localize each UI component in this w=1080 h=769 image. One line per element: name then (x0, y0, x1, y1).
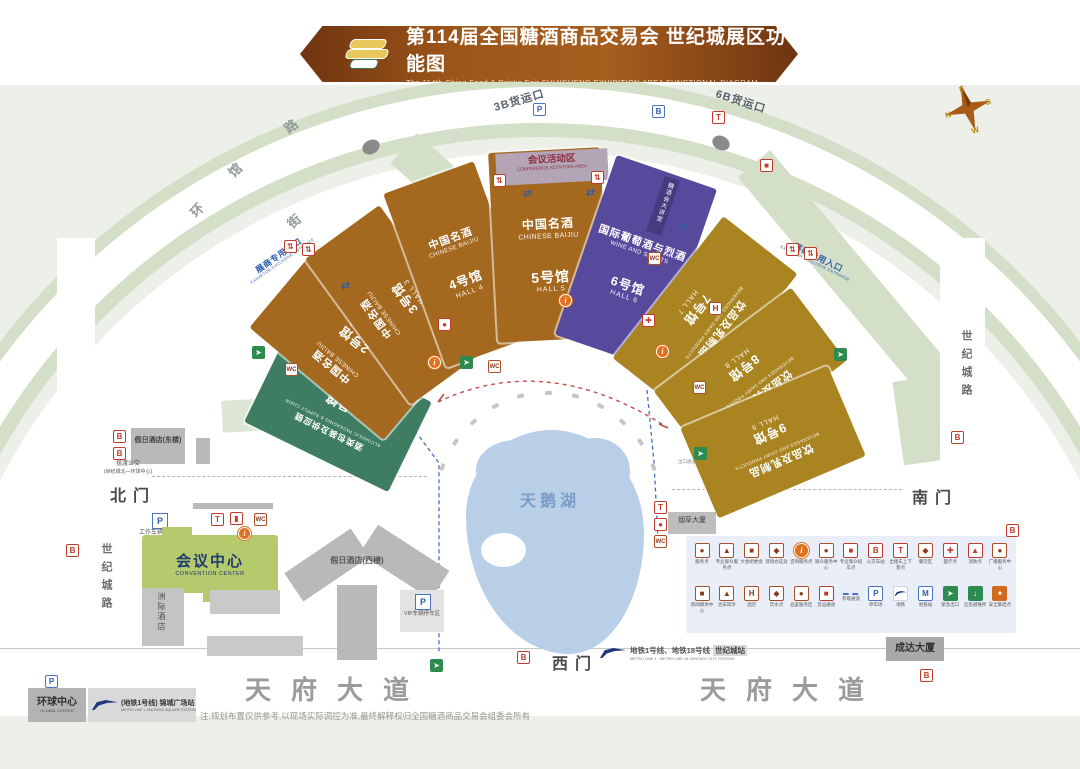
title-banner: 第114届全国糖酒商品交易会 世纪城展区功能图 The 114th China … (300, 26, 798, 82)
legend-item: T出租车上下客点 (889, 543, 913, 571)
legend-item: ✚医疗点 (938, 543, 962, 571)
parking-icon: P (45, 675, 58, 688)
legend-icon: T (893, 543, 908, 558)
century-road-right: 世纪城路 (958, 330, 974, 402)
tianfu-avenue-left: 天府大道 (245, 670, 429, 707)
exit-icon: ➤ (694, 447, 707, 460)
legend-icon: ▲ (968, 543, 983, 558)
bus-station-icon: B (652, 105, 665, 118)
restroom-icon: WC (654, 535, 667, 548)
century-station-en: METRO LINE 1 · METRO LINE 18 CENTURY CIT… (630, 657, 747, 661)
holiday-inn-east-wing (196, 438, 210, 464)
legend-item: ➤紧急出口 (938, 586, 962, 614)
compass-n: N (944, 110, 952, 120)
legend-row-2: ■新闻媒体中心▲治安岗亭H酒店◆饮水点●品鉴服务区■货运通道参观通道P停车场地铁… (690, 586, 1012, 614)
bottle-icon: ▮ (230, 512, 243, 525)
bus-icon: B (951, 431, 964, 444)
legend-icon: ◆ (769, 543, 784, 558)
legend-label: 新闻媒体中心 (690, 602, 714, 614)
exit-icon: ➤ (460, 356, 473, 369)
exhibition-map: 天鹅湖 酒类包装及供应链 ALCOHOLIC PACKAGING & SUPPL… (0, 0, 1080, 769)
legend-icon: ■ (695, 586, 710, 601)
truck-icon: ■ (760, 159, 773, 172)
vip-parking-icon: P (415, 594, 431, 610)
legend-item: ●观众服务中心 (814, 543, 838, 571)
arrow-icon: ⇄ (584, 187, 597, 200)
info-icon: i (238, 527, 251, 540)
legend-icon: ▲ (719, 586, 734, 601)
legend-label: 医疗点 (938, 559, 962, 565)
holiday-inn-east (131, 428, 185, 464)
exit-icon: ➤ (430, 659, 443, 672)
bus-icon: B (920, 669, 933, 682)
hotel-annex (207, 636, 303, 656)
convention-wall (193, 503, 273, 509)
legend-item: ✦安全集结点 (988, 586, 1012, 614)
legend-row-1: ●服务点▲专业观众服务点■大会组委会◆现场办证处i咨询服务点●观众服务中心■专业… (690, 543, 1012, 571)
legend-icon: P (868, 586, 883, 601)
bus-icon: B (1006, 524, 1019, 537)
legend-label: 饮水点 (764, 602, 788, 608)
legend-panel: ●服务点▲专业观众服务点■大会组委会◆现场办证处i咨询服务点●观众服务中心■专业… (686, 536, 1016, 633)
legend-label: 观众服务中心 (814, 559, 838, 571)
escalator-icon: ⇅ (804, 247, 817, 260)
legend-icon: H (744, 586, 759, 601)
south-gate: 南门 (912, 484, 958, 508)
legend-item: ↓应急避难所 (963, 586, 987, 614)
legend-item: ▲消防点 (963, 543, 987, 571)
info-icon: i (428, 356, 441, 369)
legend-label: 消防点 (963, 559, 987, 565)
global-center-label: 环球中心 GLOBAL CENTER (28, 693, 86, 713)
legend-label: 出租车上下客点 (889, 559, 913, 571)
legend-icon: ● (992, 543, 1007, 558)
jincheng-station-en: METRO LINE 1 JINCHENG SQUARE STATION (121, 708, 196, 712)
hotel-icon: H (709, 302, 722, 315)
legend-item: ▲专业观众服务点 (715, 543, 739, 571)
service-icon: ● (438, 318, 451, 331)
legend-icon: ▲ (719, 543, 734, 558)
exit-icon: ➤ (834, 348, 847, 361)
service-icon: ● (654, 518, 667, 531)
car-icon: T (211, 513, 224, 526)
legend-icon: B (868, 543, 883, 558)
legend-label: 参观通道 (839, 596, 863, 602)
tobacco-building-label: 烟草大厦 (668, 517, 716, 525)
legend-item: ■货运通道 (814, 586, 838, 614)
bus-icon: B (517, 651, 530, 664)
legend-item: ◆现场办证处 (764, 543, 788, 571)
compass-s: S (984, 97, 992, 107)
convention-center-bump (162, 527, 192, 537)
legend-item: M地铁站 (913, 586, 937, 614)
legend-label: 专业观众服务点 (715, 559, 739, 571)
taxi-icon: T (654, 501, 667, 514)
shuttle-bus-icon: B (113, 447, 126, 460)
legend-icon: i (794, 543, 809, 558)
holiday-inn-west-label: 假日酒店(西楼) (322, 556, 392, 566)
convention-center-label: 会议中心 CONVENTION CENTER (142, 550, 278, 577)
legend-item: H酒店 (740, 586, 764, 614)
gate-icon: ⇅ (493, 174, 506, 187)
restroom-icon: WC (693, 381, 706, 394)
tianfu-avenue-right: 天府大道 (700, 670, 884, 707)
legend-item: 地铁 (889, 586, 913, 614)
holiday-inn-east-label: 假日酒店(东楼) (133, 437, 183, 445)
compass-icon: E S W N (940, 80, 996, 136)
legend-item: P停车场 (864, 586, 888, 614)
global-center-cn: 环球中心 (28, 693, 86, 708)
legend-item: ●品鉴服务区 (789, 586, 813, 614)
legend-item: ◆餐饮区 (913, 543, 937, 571)
taxi-icon: T (712, 111, 725, 124)
legend-label: 服务点 (690, 559, 714, 565)
legend-label: 专业观众班车点 (839, 559, 863, 571)
legend-label: 应急避难所 (963, 602, 987, 608)
restroom-icon: WC (254, 513, 267, 526)
century-station-lines: 地铁1号线、地铁18号线 (630, 645, 710, 656)
parking-icon: P (533, 103, 546, 116)
legend-icon: ■ (819, 586, 834, 601)
escalator-icon: ⇅ (284, 240, 297, 253)
exit-icon: ➤ (252, 346, 265, 359)
century-road-left: 世纪城路 (98, 543, 114, 615)
arrow-icon: ⇄ (521, 188, 534, 201)
shuttle-line1: 摆渡公交 (88, 461, 168, 469)
escalator-icon: ⇅ (302, 243, 315, 256)
fair-logo-icon (342, 35, 392, 73)
legend-icon: ■ (744, 543, 759, 558)
north-gate: 北门 (110, 482, 156, 506)
legend-item: ●广播服务中心 (988, 543, 1012, 571)
intercontinental-label: 洲际酒店 (156, 592, 167, 632)
restroom-icon: WC (488, 360, 501, 373)
legend-icon: ◆ (769, 586, 784, 601)
legend-label: 餐饮区 (913, 559, 937, 565)
legend-icon (843, 593, 858, 595)
holiday-inn-west-stem (337, 585, 377, 660)
legend-icon (893, 586, 908, 601)
west-gate: 西门 (552, 650, 598, 674)
restroom-icon: WC (285, 363, 298, 376)
legend-item: 参观通道 (839, 586, 863, 614)
legend-label: 货运通道 (814, 602, 838, 608)
century-station: 地铁1号线、地铁18号线 世纪城站 METRO LINE 1 · METRO L… (600, 645, 747, 661)
legend-icon: ➤ (943, 586, 958, 601)
legend-label: 品鉴服务区 (789, 602, 813, 608)
legend-label: 广播服务中心 (988, 559, 1012, 571)
legend-label: 地铁站 (913, 602, 937, 608)
metro-logo-icon (92, 700, 118, 710)
legend-label: 公交车站 (864, 559, 888, 565)
legend-item: B公交车站 (864, 543, 888, 571)
compass-w: W (970, 125, 980, 136)
jincheng-station-banner: (地铁1号线) 锦城广场站 METRO LINE 1 JINCHENG SQUA… (88, 688, 196, 722)
bus-icon: B (113, 430, 126, 443)
jincheng-station-cn: (地铁1号线) 锦城广场站 (121, 698, 196, 708)
legend-icon: ● (794, 586, 809, 601)
legend-label: 咨询服务点 (789, 559, 813, 565)
info-icon: i (656, 345, 669, 358)
medical-icon: ✚ (642, 314, 655, 327)
legend-label: 治安岗亭 (715, 602, 739, 608)
convention-cn: 会议中心 (142, 550, 278, 571)
legend-item: ●服务点 (690, 543, 714, 571)
compass-e: E (958, 84, 966, 94)
lake-label: 天鹅湖 (520, 487, 580, 511)
legend-label: 现场办证处 (764, 559, 788, 565)
legend-label: 酒店 (740, 602, 764, 608)
legend-icon: ● (695, 543, 710, 558)
shuttle-bus-label: 摆渡公交 (世纪城北—环球中心) (88, 461, 168, 475)
legend-label: 紧急出口 (938, 602, 962, 608)
legend-item: ■专业观众班车点 (839, 543, 863, 571)
page-title: 第114届全国糖酒商品交易会 世纪城展区功能图 (406, 22, 798, 76)
legend-item: ■大会组委会 (740, 543, 764, 571)
metro-logo-icon (600, 648, 626, 658)
legend-label: 安全集结点 (988, 602, 1012, 608)
legend-label: 停车场 (864, 602, 888, 608)
legend-icon: ✚ (943, 543, 958, 558)
legend-item: ◆饮水点 (764, 586, 788, 614)
legend-icon: ↓ (968, 586, 983, 601)
escalator-icon: ⇅ (786, 243, 799, 256)
info-icon: i (559, 294, 572, 307)
legend-icon: ■ (843, 543, 858, 558)
legend-item: ■新闻媒体中心 (690, 586, 714, 614)
restroom-icon: WC (648, 252, 661, 265)
legend-icon: ✦ (992, 586, 1007, 601)
plaza-stall (545, 391, 552, 395)
legend-label: 大会组委会 (740, 559, 764, 565)
arrow-icon: ⇄ (677, 221, 690, 234)
legend-icon: M (918, 586, 933, 601)
convention-en: CONVENTION CENTER (142, 571, 278, 577)
legend-item: ▲治安岗亭 (715, 586, 739, 614)
legend-icon: ◆ (918, 543, 933, 558)
legend-label: 地铁 (889, 602, 913, 608)
arrow-icon: ⇄ (339, 280, 352, 293)
century-station-name: 世纪城站 (713, 645, 747, 656)
legend-item: i咨询服务点 (789, 543, 813, 571)
lake-island (481, 533, 526, 567)
shuttle-line2: (世纪城北—环球中心) (88, 469, 168, 475)
vip-parking-label: VIP车辆停车区 (398, 611, 446, 618)
global-center-en: GLOBAL CENTER (28, 708, 86, 713)
legend-icon: ● (819, 543, 834, 558)
chengda-building-label: 成达大厦 (886, 643, 944, 655)
bus-icon: B (66, 544, 79, 557)
hotel-annex (210, 590, 280, 614)
map-note: 注:规划布置仅供参考,以现场实际调控为准,最终解释权归全国糖酒商品交易会组委会所… (200, 710, 530, 722)
gate-icon: ⇅ (591, 171, 604, 184)
